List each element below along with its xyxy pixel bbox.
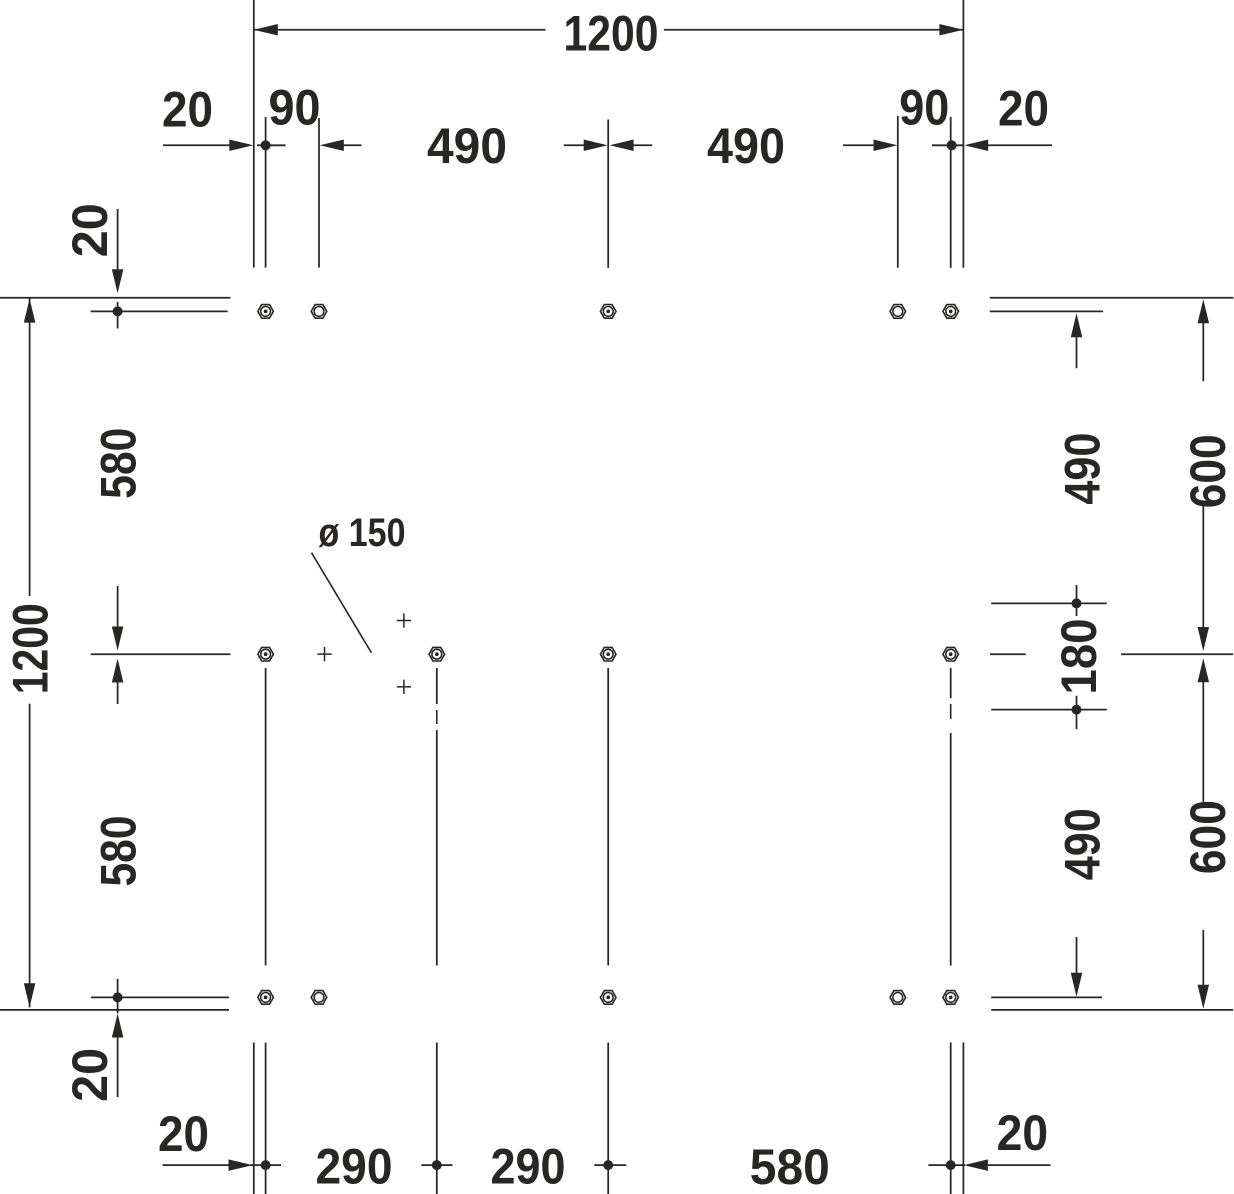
svg-text:90: 90 — [269, 80, 321, 136]
svg-text:490: 490 — [427, 118, 507, 174]
svg-text:20: 20 — [62, 1048, 118, 1102]
svg-text:580: 580 — [91, 428, 147, 499]
svg-text:20: 20 — [162, 82, 213, 138]
svg-text:600: 600 — [1180, 434, 1234, 508]
svg-text:20: 20 — [158, 1106, 209, 1162]
svg-text:90: 90 — [899, 80, 949, 136]
svg-text:290: 290 — [316, 1138, 393, 1194]
svg-text:600: 600 — [1180, 800, 1234, 874]
svg-text:290: 290 — [491, 1138, 566, 1194]
svg-text:1200: 1200 — [564, 5, 659, 61]
svg-text:20: 20 — [62, 203, 118, 257]
svg-text:580: 580 — [750, 1139, 830, 1194]
svg-text:20: 20 — [997, 1105, 1049, 1161]
svg-text:490: 490 — [707, 118, 785, 174]
svg-text:180: 180 — [1051, 619, 1107, 695]
svg-text:ø 150: ø 150 — [319, 511, 406, 555]
svg-text:20: 20 — [998, 81, 1049, 137]
svg-text:490: 490 — [1054, 433, 1110, 505]
svg-text:580: 580 — [91, 816, 147, 887]
svg-text:1200: 1200 — [3, 603, 59, 694]
svg-text:490: 490 — [1054, 808, 1110, 880]
